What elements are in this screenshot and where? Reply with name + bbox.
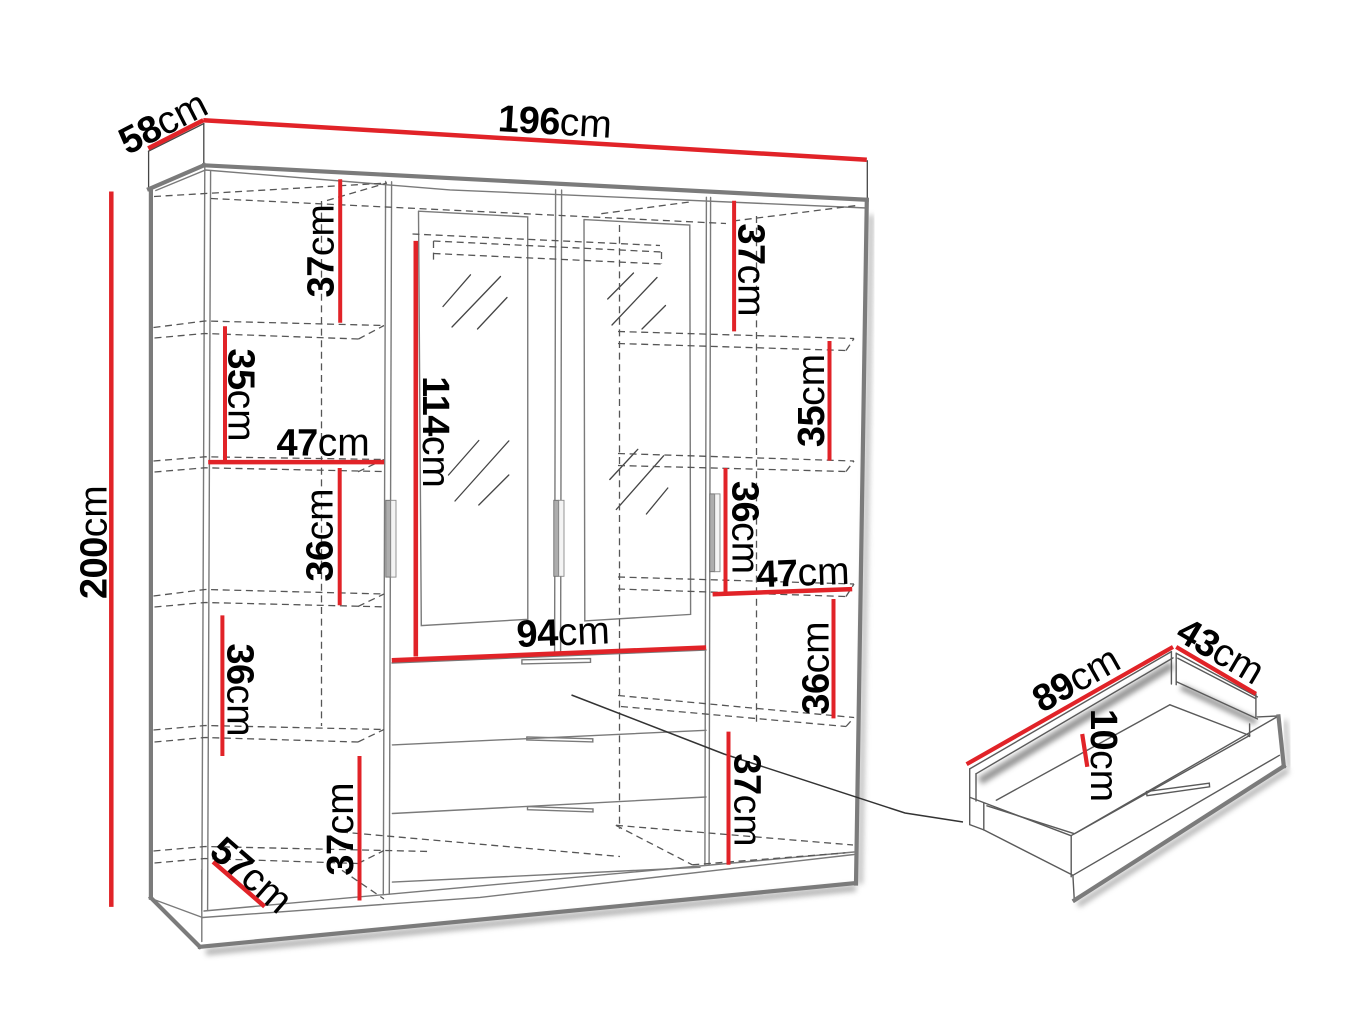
svg-text:37cm: 37cm [319, 782, 362, 875]
svg-text:47cm: 47cm [756, 550, 851, 596]
svg-text:35cm: 35cm [220, 348, 263, 441]
svg-text:94cm: 94cm [516, 609, 611, 656]
svg-text:200cm: 200cm [72, 485, 115, 599]
svg-text:47cm: 47cm [276, 422, 369, 465]
svg-text:36cm: 36cm [299, 488, 342, 581]
svg-text:114cm: 114cm [414, 376, 457, 488]
svg-text:10cm: 10cm [1082, 709, 1125, 802]
svg-text:35cm: 35cm [790, 354, 833, 447]
svg-text:37cm: 37cm [730, 223, 773, 316]
svg-text:37cm: 37cm [726, 753, 769, 846]
svg-text:36cm: 36cm [795, 621, 838, 714]
svg-text:196cm: 196cm [497, 97, 613, 147]
svg-text:36cm: 36cm [219, 643, 262, 736]
svg-text:37cm: 37cm [300, 204, 343, 297]
